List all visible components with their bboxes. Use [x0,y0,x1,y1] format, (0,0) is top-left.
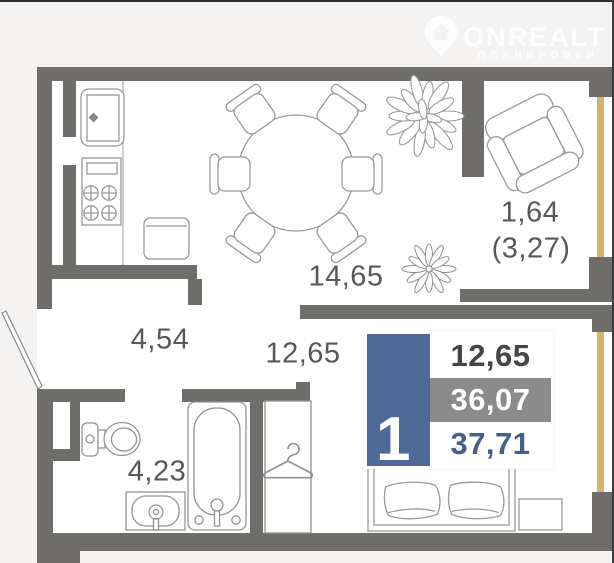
stove-icon [82,158,121,225]
wall-top [37,67,614,81]
label-hallway-area: 4,54 [131,324,189,357]
wall-balcony-pier-top [589,81,614,97]
label-bathroom-area: 4,23 [128,456,186,489]
label-balcony-area-reduced: 1,64 [501,197,559,230]
cabinet-icon [144,218,189,259]
wall-bottom-left-step [37,551,80,563]
location-pin-house-icon [423,14,459,58]
label-bedroom-area: 12,65 [265,338,340,371]
wall-kitchen-shaft-a [63,81,76,137]
watermark-brand-text: ONREALT [463,22,606,53]
label-kitchen-living-area: 14,65 [308,261,383,294]
balcony-glazing-window [597,97,604,257]
wall-bedroom-pier-top [592,305,614,332]
wall-kitchen-shaft-b [63,165,76,279]
bathtub-icon [188,402,246,530]
wall-bathroom-top-left [40,389,125,402]
toilet-icon [82,423,140,457]
floor-plan-svg [0,2,614,563]
floorplan-image: 14,65 4,54 12,65 4,23 1,64 (3,27) 1 12,6… [0,0,614,563]
wall-bathroom-top-right [182,389,310,402]
wall-duct-horizontal [40,449,78,461]
wall-bedroom-pier-bottom [592,492,614,551]
label-balcony-area-full: (3,27) [492,233,571,266]
living-area-value: 12,65 [430,334,551,378]
onrealt-watermark: ONREALT ПЛАНИРОВКИ [423,14,608,64]
wall-bedroom-door-stub [296,382,310,394]
area-summary-rows: 12,65 36,07 37,71 [430,334,551,466]
area-without-balcony-value: 36,07 [430,378,551,422]
watermark-tagline-text: ПЛАНИРОВКИ [478,50,599,61]
entry-door-icon [2,311,42,389]
wardrobe-icon [264,401,313,533]
nightstand-icon [519,499,562,530]
area-summary-box: 1 12,65 36,07 37,71 [364,331,554,469]
wall-balcony-pier-bottom [589,257,614,302]
wall-balcony-partition [462,81,484,177]
washbasin-icon [126,492,185,530]
total-area-value: 37,71 [430,422,551,466]
wall-bottom [37,533,592,551]
wall-bathroom-right [250,402,263,533]
wall-kitchen-bottom [37,265,197,279]
bedroom-window [597,332,604,492]
wall-hall-stub [188,279,202,305]
kitchen-sink-icon [81,89,124,146]
rooms-count: 1 [367,334,430,466]
wall-bedroom-top [300,305,592,319]
